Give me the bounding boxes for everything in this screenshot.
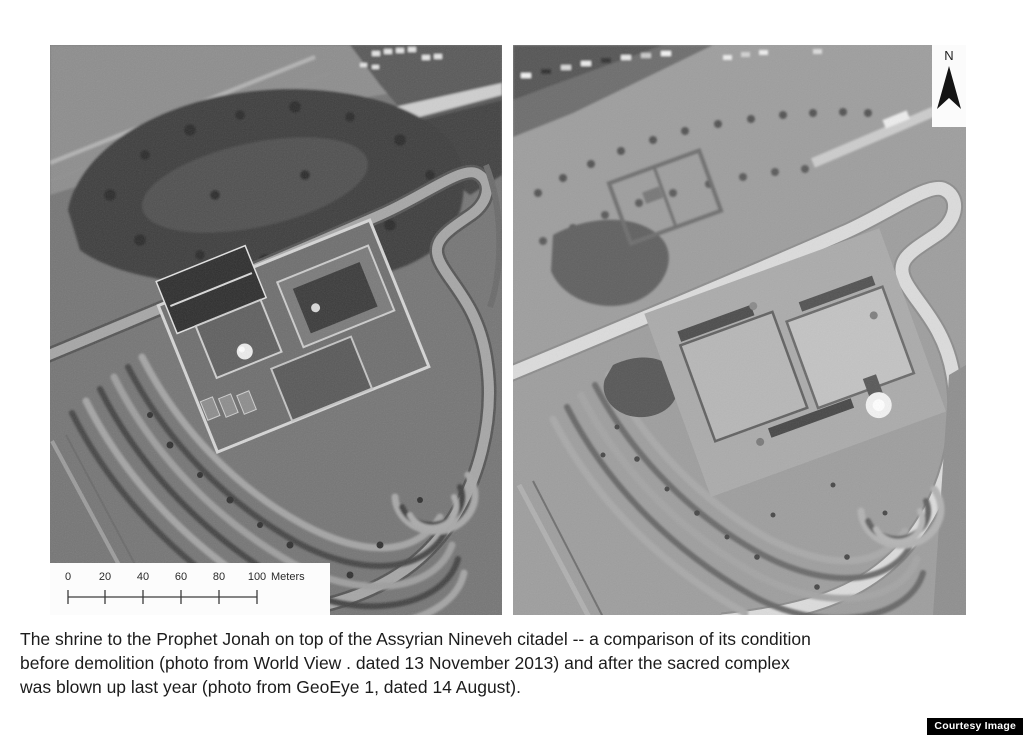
scale-tick-label: 60 (175, 571, 187, 583)
satellite-photo-before: 0 20 40 60 80 100 Meters (50, 45, 502, 615)
north-label: N (944, 49, 953, 63)
caption-line: The shrine to the Prophet Jonah on top o… (20, 627, 811, 651)
caption-line: before demolition (photo from World View… (20, 651, 811, 675)
scale-unit-label: Meters (271, 571, 305, 583)
map-scale-bar: 0 20 40 60 80 100 Meters (50, 563, 330, 615)
scale-tick-label: 80 (213, 571, 225, 583)
north-arrow-icon (935, 65, 963, 111)
scale-tick-label: 40 (137, 571, 149, 583)
scale-tick-label: 100 (248, 571, 266, 583)
photo-comparison-figure: 0 20 40 60 80 100 Meters (0, 0, 1024, 739)
after-photo-art (513, 45, 966, 615)
caption-line: was blown up last year (photo from GeoEy… (20, 675, 811, 699)
figure-caption: The shrine to the Prophet Jonah on top o… (20, 627, 811, 699)
credit-badge: Courtesy Image (927, 718, 1023, 735)
satellite-photo-after: N (513, 45, 966, 615)
before-photo-art (50, 45, 502, 615)
scale-bar-ticks-icon (50, 587, 330, 607)
north-indicator: N (932, 45, 966, 127)
scale-tick-label: 20 (99, 571, 111, 583)
scale-tick-label: 0 (65, 571, 71, 583)
